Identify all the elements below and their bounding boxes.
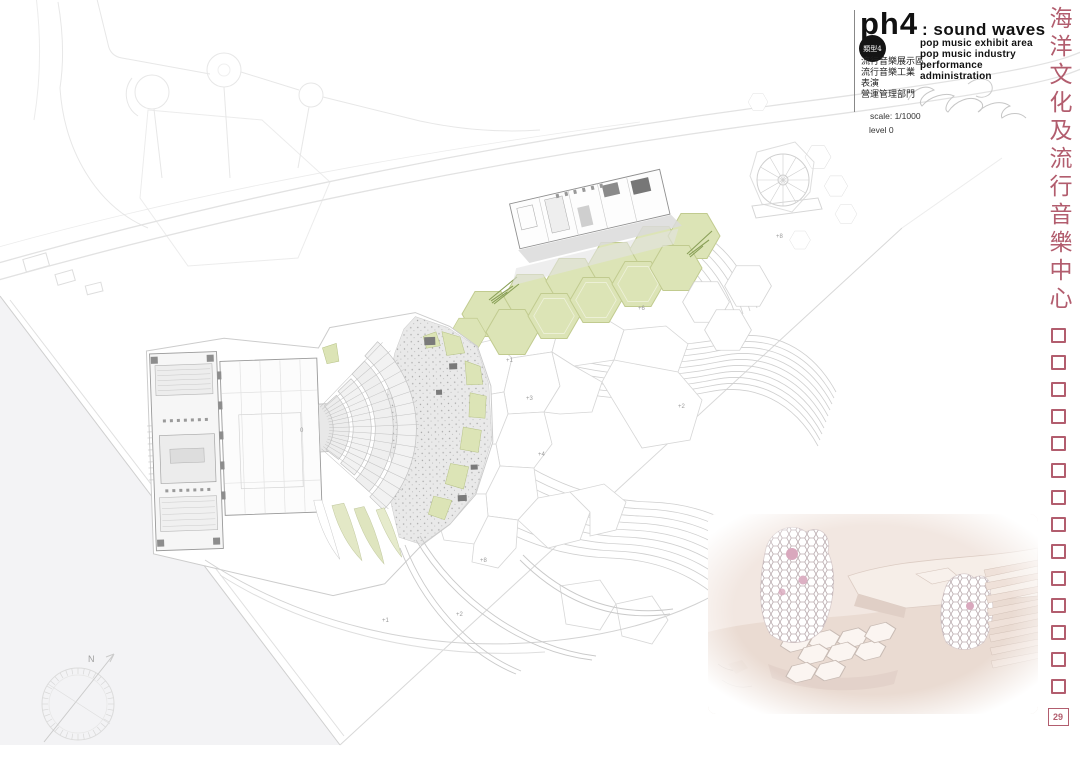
- svg-text:+8: +8: [776, 234, 784, 240]
- project-title: : sound waves: [922, 20, 1046, 40]
- page-number: 29: [1048, 708, 1069, 726]
- model-photo: [708, 514, 1038, 714]
- placeholder-square: [1051, 544, 1066, 559]
- placeholder-square: [1051, 328, 1066, 343]
- placeholder-square: [1051, 355, 1066, 370]
- program-en-item: pop music industry: [920, 49, 1033, 60]
- placeholder-square: [1051, 490, 1066, 505]
- svg-text:+6: +6: [638, 306, 646, 312]
- placeholder-square: [1051, 598, 1066, 613]
- north-label: N: [88, 654, 95, 664]
- title-divider: [854, 10, 855, 112]
- svg-text:+2: +2: [456, 612, 464, 618]
- program-zh-item: 流行音樂工業: [861, 68, 924, 79]
- placeholder-square: [1051, 679, 1066, 694]
- model-photo-graphic: [708, 514, 1038, 714]
- svg-text:+1: +1: [506, 358, 514, 364]
- program-en-item: pop music exhibit area: [920, 38, 1033, 49]
- placeholder-squares: [1051, 322, 1066, 700]
- placeholder-square: [1051, 652, 1066, 667]
- svg-text:+1: +1: [382, 618, 390, 624]
- placeholder-square: [1051, 382, 1066, 397]
- svg-text:+4: +4: [538, 452, 546, 458]
- placeholder-square: [1051, 571, 1066, 586]
- program-list-en: pop music exhibit area pop music industr…: [920, 38, 1033, 82]
- program-en-item: performance: [920, 60, 1033, 71]
- placeholder-square: [1051, 625, 1066, 640]
- placeholder-square: [1051, 463, 1066, 478]
- svg-text:+8: +8: [480, 558, 488, 564]
- right-title-bar: 海洋文化及流行音樂中心 29: [1040, 6, 1076, 758]
- svg-text:+2: +2: [678, 404, 686, 410]
- placeholder-square: [1051, 409, 1066, 424]
- program-en-item: administration: [920, 71, 1033, 82]
- svg-text:+3: +3: [526, 396, 534, 402]
- level-label: level 0: [869, 125, 894, 135]
- title-block: ph4 : sound waves 類型4 pop music exhibit …: [856, 8, 1051, 143]
- placeholder-square: [1051, 436, 1066, 451]
- backstage-block: [145, 352, 224, 551]
- placeholder-square: [1051, 517, 1066, 532]
- vertical-title: 海洋文化及流行音樂中心: [1042, 6, 1074, 314]
- program-list-zh: 流行音樂展示區 流行音樂工業 表演 營運管理部門: [861, 57, 924, 101]
- program-zh-item: 營運管理部門: [861, 90, 924, 101]
- program-zh-item: 流行音樂展示區: [861, 57, 924, 68]
- presentation-board: +1 +3 +4 +2 +6 +8 +1 +2 +8 0 N ph4: [0, 0, 1080, 764]
- scale-label: scale: 1/1000: [870, 111, 921, 121]
- program-zh-item: 表演: [861, 79, 924, 90]
- concert-hall: [143, 310, 498, 602]
